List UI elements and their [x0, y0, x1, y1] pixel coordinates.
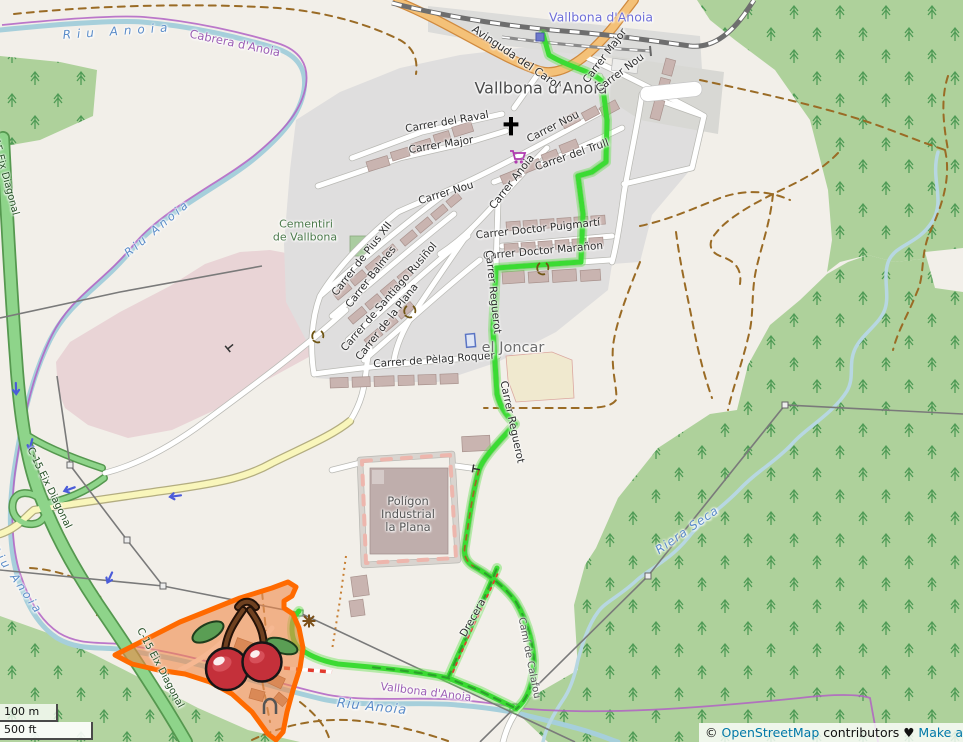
farmland-joncar	[506, 352, 574, 402]
parking-icon	[465, 334, 475, 348]
scale-metric: 100 m	[0, 704, 58, 722]
contributors-text: contributors	[819, 725, 903, 740]
railway-station-icon	[536, 33, 544, 41]
scale-imperial: 500 ft	[0, 722, 93, 740]
map-canvas[interactable]: Riu Anoia Cabrera d'Anoia Riu Anoia Riu …	[0, 0, 963, 742]
attribution-bar: © OpenStreetMap contributors ♥ Make a	[699, 723, 963, 742]
map-graphics	[0, 0, 963, 742]
copyright-symbol: ©	[705, 725, 721, 740]
heart-icon: ♥	[903, 725, 914, 740]
osm-link[interactable]: OpenStreetMap	[722, 725, 820, 740]
flower-icon	[303, 615, 316, 628]
scale-control: 100 m 500 ft	[0, 704, 93, 740]
donate-link[interactable]: Make a	[914, 725, 963, 740]
